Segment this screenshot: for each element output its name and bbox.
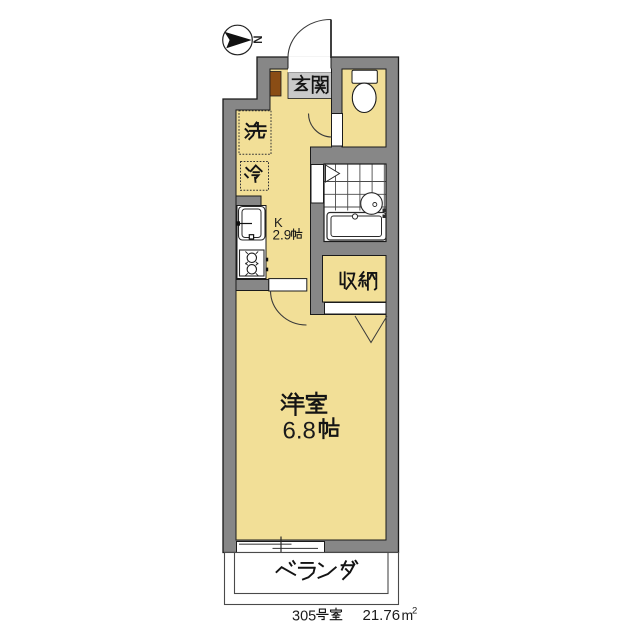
svg-text:6.8: 6.8 (283, 417, 316, 444)
svg-text:2: 2 (412, 606, 417, 617)
svg-text:21.76: 21.76 (363, 607, 401, 624)
svg-text:N: N (251, 36, 263, 44)
svg-text:2.9: 2.9 (273, 228, 292, 243)
svg-text:305: 305 (292, 609, 316, 625)
